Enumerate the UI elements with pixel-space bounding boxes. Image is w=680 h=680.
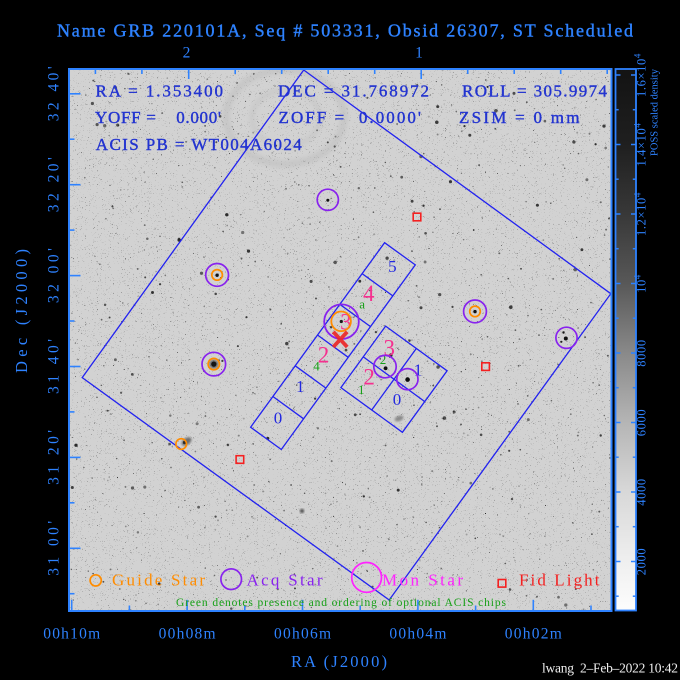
svg-text:6000: 6000 <box>635 409 649 436</box>
svg-text:DEC = 31.768972: DEC = 31.768972 <box>278 82 429 101</box>
svg-text:RA = 1.353400: RA = 1.353400 <box>96 82 224 101</box>
svg-text:2000: 2000 <box>635 548 649 575</box>
svg-text:00h08m: 00h08m <box>159 626 216 643</box>
svg-text:0: 0 <box>274 409 283 428</box>
svg-text:POSS scaled density: POSS scaled density <box>650 68 661 156</box>
svg-text:1: 1 <box>358 382 365 397</box>
svg-text:4000: 4000 <box>635 478 649 505</box>
svg-text:1.4×104: 1.4×104 <box>633 123 649 167</box>
svg-text:Acq Star: Acq Star <box>247 571 323 590</box>
svg-text:a: a <box>359 297 365 312</box>
svg-text:Guide Star: Guide Star <box>112 571 205 590</box>
svg-text:4: 4 <box>313 359 320 374</box>
svg-text:Name GRB 220101A, Seq # 503331: Name GRB 220101A, Seq # 503331, Obsid 26… <box>57 21 633 41</box>
svg-text:2: 2 <box>183 45 191 62</box>
svg-text:RA (J2000): RA (J2000) <box>291 652 387 671</box>
svg-text:YOFF = 0.000': YOFF = 0.000' <box>95 108 221 127</box>
svg-text:8000: 8000 <box>635 339 649 366</box>
svg-text:ACIS PB = WT004A6024: ACIS PB = WT004A6024 <box>96 135 302 154</box>
svg-text:1.6×104: 1.6×104 <box>633 53 649 97</box>
svg-text:0: 0 <box>393 390 402 409</box>
svg-text:Dec (J2000): Dec (J2000) <box>12 249 31 373</box>
svg-text:lwang 2–Feb–2022 10:42: lwang 2–Feb–2022 10:42 <box>542 661 678 676</box>
svg-text:00h10m: 00h10m <box>43 626 100 643</box>
svg-text:2: 2 <box>380 352 387 367</box>
svg-text:00h06m: 00h06m <box>274 626 331 643</box>
svg-text:5: 5 <box>388 257 397 276</box>
svg-text:Green denotes presence and ord: Green denotes presence and ordering of o… <box>176 597 507 609</box>
svg-text:1.2×104: 1.2×104 <box>633 192 649 236</box>
svg-text:Mon Star: Mon Star <box>382 571 463 590</box>
svg-text:00h02m: 00h02m <box>505 626 562 643</box>
svg-text:1: 1 <box>296 377 305 396</box>
svg-text:ZOFF = 0.0000': ZOFF = 0.0000' <box>279 108 422 127</box>
svg-text:ROLL = 305.9974: ROLL = 305.9974 <box>462 82 608 101</box>
svg-text:00h04m: 00h04m <box>389 626 446 643</box>
svg-text:1: 1 <box>415 45 423 62</box>
svg-text:Fid Light: Fid Light <box>519 571 600 590</box>
svg-text:ZSIM = 0 mm: ZSIM = 0 mm <box>459 108 580 127</box>
